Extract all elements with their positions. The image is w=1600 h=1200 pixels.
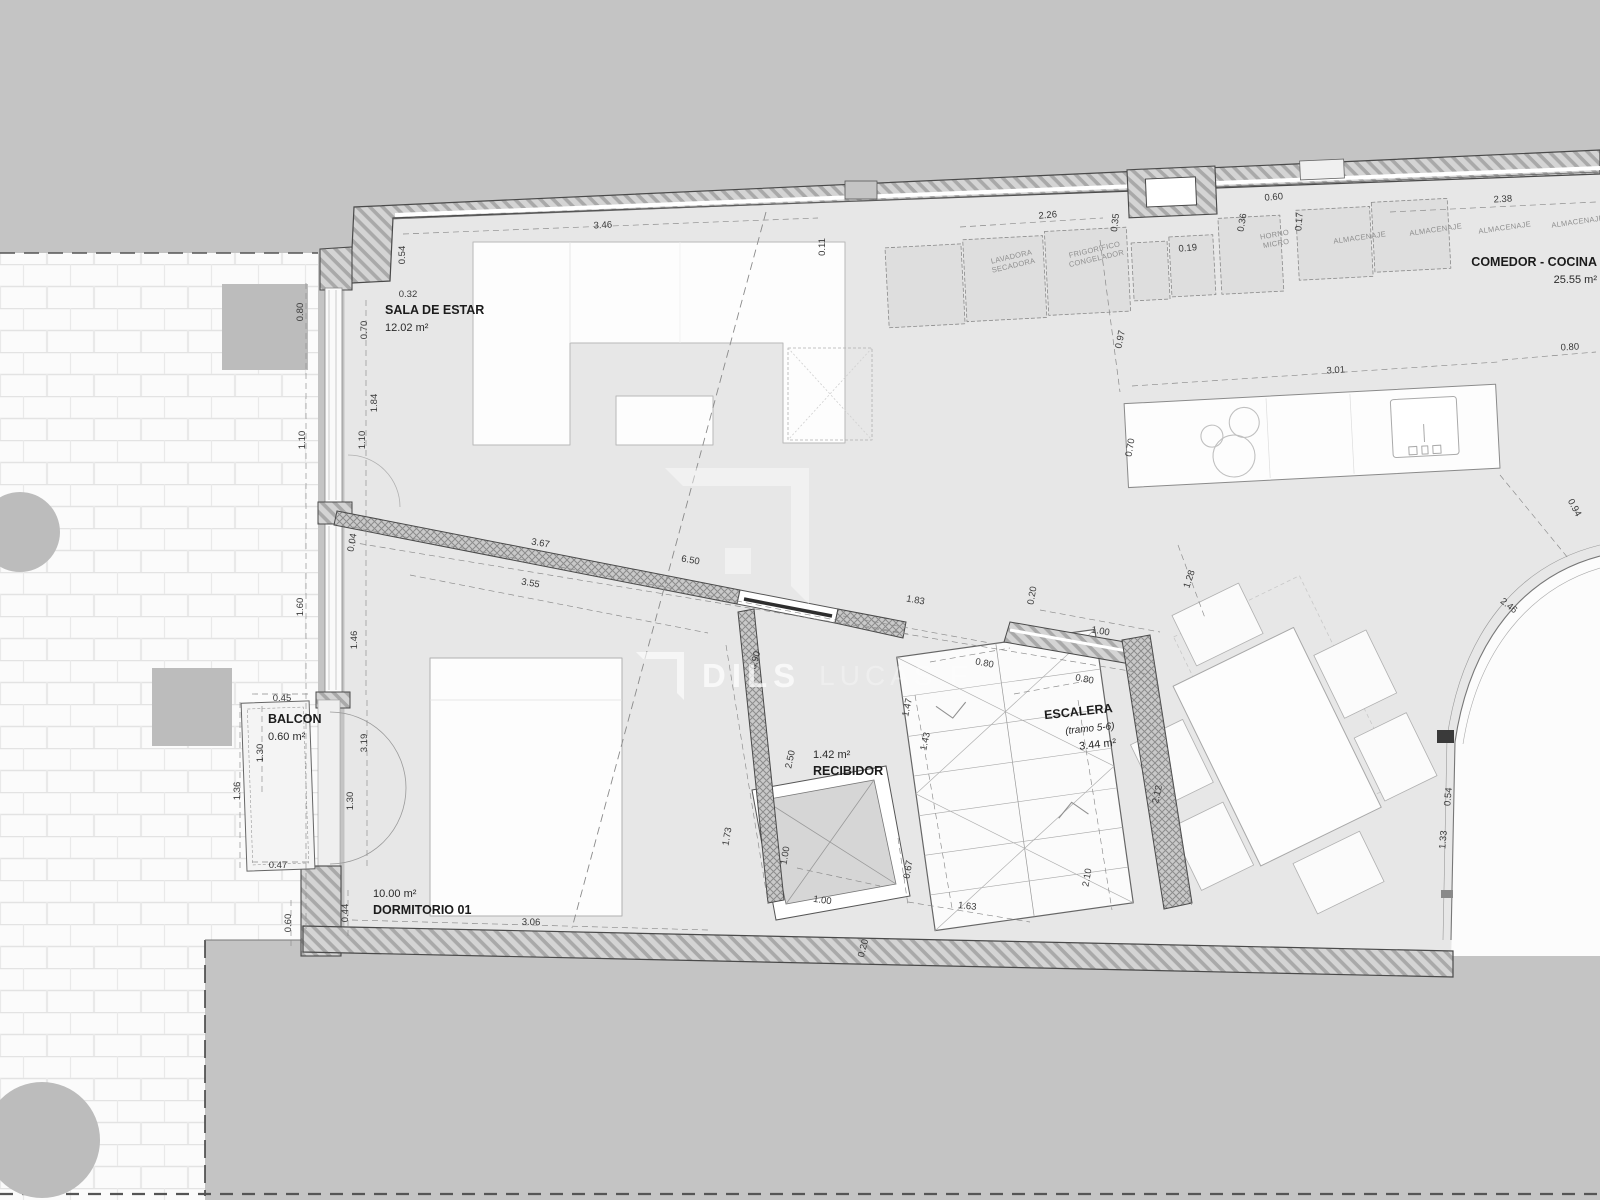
staircase [897, 629, 1133, 930]
room-label: 1.42 m² [813, 749, 851, 761]
dimension-label: 1.84 [369, 394, 380, 413]
dimension-label: 1.60 [295, 598, 306, 617]
dimension-label: 1.36 [232, 782, 243, 801]
dimension-label: 0.35 [1109, 213, 1122, 233]
dimension-label: 1.30 [345, 792, 356, 811]
dimension-label: 0.60 [1264, 191, 1283, 204]
room-label: 25.55 m² [1554, 274, 1598, 286]
dimension-label: 0.70 [359, 321, 370, 340]
dimension-label: 0.45 [273, 693, 292, 704]
coffee-table [616, 396, 713, 445]
dimension-label: 0.54 [1442, 787, 1455, 806]
dimension-label: 1.63 [957, 900, 977, 913]
balcony [241, 701, 315, 871]
dimension-label: 0.80 [1560, 342, 1579, 354]
dimension-label: 0.47 [269, 860, 288, 871]
sink-icon [1390, 396, 1459, 457]
dimension-label: 3.06 [522, 917, 541, 928]
dimension-label: 3.46 [593, 220, 612, 232]
dimension-label: 0.11 [817, 238, 828, 256]
dimension-label: 1.46 [349, 631, 360, 650]
dimension-label: 2.26 [1038, 209, 1057, 222]
dimension-label: 0.19 [1178, 242, 1197, 255]
room-label: 12.02 m² [385, 322, 429, 334]
dimension-label: 1.10 [357, 431, 368, 450]
dimension-label: 2.38 [1493, 194, 1512, 206]
dimension-label: 0.44 [340, 904, 351, 923]
room-label: SALA DE ESTAR [385, 303, 484, 317]
room-label: DORMITORIO 01 [373, 903, 471, 917]
dimension-label: 1.30 [255, 744, 266, 763]
room-label: 10.00 m² [373, 888, 417, 900]
dimension-label: 1.10 [297, 431, 308, 450]
dimension-label: 1.33 [1437, 830, 1450, 849]
room-label: COMEDOR - COCINA [1471, 255, 1597, 269]
floor-plan-canvas: 3.460.540.320.800.701.841.101.100.112.26… [0, 0, 1600, 1200]
dimension-label: 0.60 [283, 914, 294, 933]
floor-plan-svg: 3.460.540.320.800.701.841.101.100.112.26… [0, 0, 1600, 1200]
bed [430, 658, 622, 916]
dimension-label: 0.17 [1293, 212, 1306, 231]
dimension-label: 0.54 [397, 246, 408, 265]
room-label: 0.60 m² [268, 731, 306, 743]
dimension-label: 3.19 [359, 734, 370, 753]
dimension-label: 0.32 [399, 289, 418, 300]
room-label: BALCON [268, 712, 321, 726]
room-label: RECIBIDOR [813, 764, 883, 778]
dimension-label: 0.80 [295, 303, 306, 322]
dimension-label: 3.01 [1326, 364, 1345, 376]
window-band [325, 288, 342, 692]
